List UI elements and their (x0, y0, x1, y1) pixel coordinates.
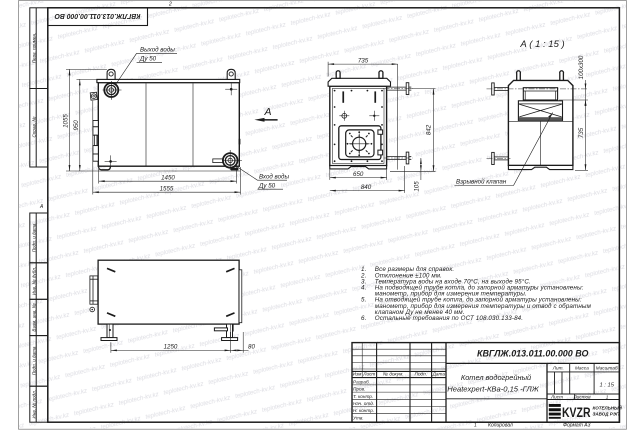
svg-text:840: 840 (361, 184, 372, 191)
svg-text:735: 735 (578, 127, 585, 138)
svg-text:Подп.: Подп. (415, 372, 427, 377)
svg-text:Дата: Дата (432, 372, 446, 377)
svg-text:Взам. инв. №: Взам. инв. № (32, 303, 37, 331)
svg-text:2: 2 (168, 2, 172, 8)
svg-text:1250: 1250 (164, 343, 178, 350)
svg-text:Котел водогрейный: Котел водогрейный (461, 373, 531, 382)
svg-text:842: 842 (426, 124, 433, 135)
svg-text:Пров.: Пров. (353, 387, 365, 392)
svg-text:Подп. и дата: Подп. и дата (32, 346, 37, 375)
svg-text:Вход воды: Вход воды (259, 173, 289, 180)
svg-text:Лист: Лист (362, 372, 375, 377)
svg-text:Масштаб: Масштаб (596, 366, 618, 371)
svg-text:1: 1 (606, 394, 609, 399)
svg-text:Разраб.: Разраб. (353, 379, 370, 384)
svg-text:950: 950 (73, 120, 80, 131)
svg-text:1055: 1055 (63, 114, 70, 128)
svg-text:Перв. примен.: Перв. примен. (32, 33, 37, 64)
svg-text:Лист: Лист (550, 394, 563, 399)
svg-text:1450: 1450 (161, 174, 175, 181)
svg-text:80: 80 (248, 343, 255, 350)
svg-text:Справ. №: Справ. № (32, 117, 37, 138)
svg-text:КОТЕЛЬНЫЙ: КОТЕЛЬНЫЙ (593, 403, 623, 410)
svg-text:Выход воды: Выход воды (140, 46, 175, 53)
svg-text:1: 1 (474, 423, 477, 429)
svg-text:Инв. № дубл.: Инв. № дубл. (32, 267, 37, 295)
svg-text:100х300: 100х300 (578, 55, 585, 79)
svg-text:А ( 1 : 15 ): А ( 1 : 15 ) (519, 39, 564, 50)
svg-text:Масса: Масса (575, 366, 589, 371)
svg-text:Утв.: Утв. (353, 415, 364, 420)
svg-text:6.: 6. (361, 315, 366, 322)
svg-text:5.: 5. (361, 297, 366, 304)
svg-text:Листов: Листов (572, 394, 591, 399)
svg-text:Взрывной клапан: Взрывной клапан (456, 179, 507, 186)
svg-text:Ду 50: Ду 50 (258, 182, 276, 189)
svg-text:№ докум.: № докум. (383, 372, 404, 377)
svg-text:Ду 50: Ду 50 (139, 55, 157, 62)
svg-text:Формат А3: Формат А3 (563, 423, 591, 429)
svg-text:КВГЛЖ.013.011.00.000 ВО: КВГЛЖ.013.011.00.000 ВО (477, 347, 589, 358)
svg-text:1 : 15: 1 : 15 (599, 382, 614, 388)
svg-text:Остальные требования по ОСТ 10: Остальные требования по ОСТ 108.030.133-… (375, 315, 523, 322)
svg-text:А: А (263, 106, 271, 118)
svg-text:650: 650 (353, 171, 364, 178)
svg-text:Подп. и дата: Подп. и дата (32, 223, 37, 252)
svg-text:KVZR: KVZR (562, 405, 591, 420)
svg-text:ЗАВОД РЭП: ЗАВОД РЭП (593, 412, 620, 417)
svg-text:735: 735 (358, 57, 369, 64)
svg-text:Н. контр.: Н. контр. (353, 408, 374, 413)
svg-text:Изм: Изм (353, 372, 362, 377)
svg-text:105: 105 (413, 181, 420, 192)
svg-text:А: А (39, 204, 44, 210)
svg-text:Т. контр.: Т. контр. (353, 394, 373, 399)
svg-text:Heatexpert-КВа-0,15 -ГЛЖ: Heatexpert-КВа-0,15 -ГЛЖ (447, 385, 540, 394)
svg-text:Копировал: Копировал (488, 423, 513, 429)
svg-text:Инв. № подл.: Инв. № подл. (32, 390, 37, 419)
svg-text:4.: 4. (361, 285, 366, 292)
svg-text:Лит.: Лит. (552, 366, 564, 371)
svg-text:1555: 1555 (160, 185, 174, 192)
svg-text:КВГЛЖ.013.011.00.000 ВО: КВГЛЖ.013.011.00.000 ВО (54, 12, 140, 19)
svg-text:Нач. отд.: Нач. отд. (353, 401, 374, 406)
